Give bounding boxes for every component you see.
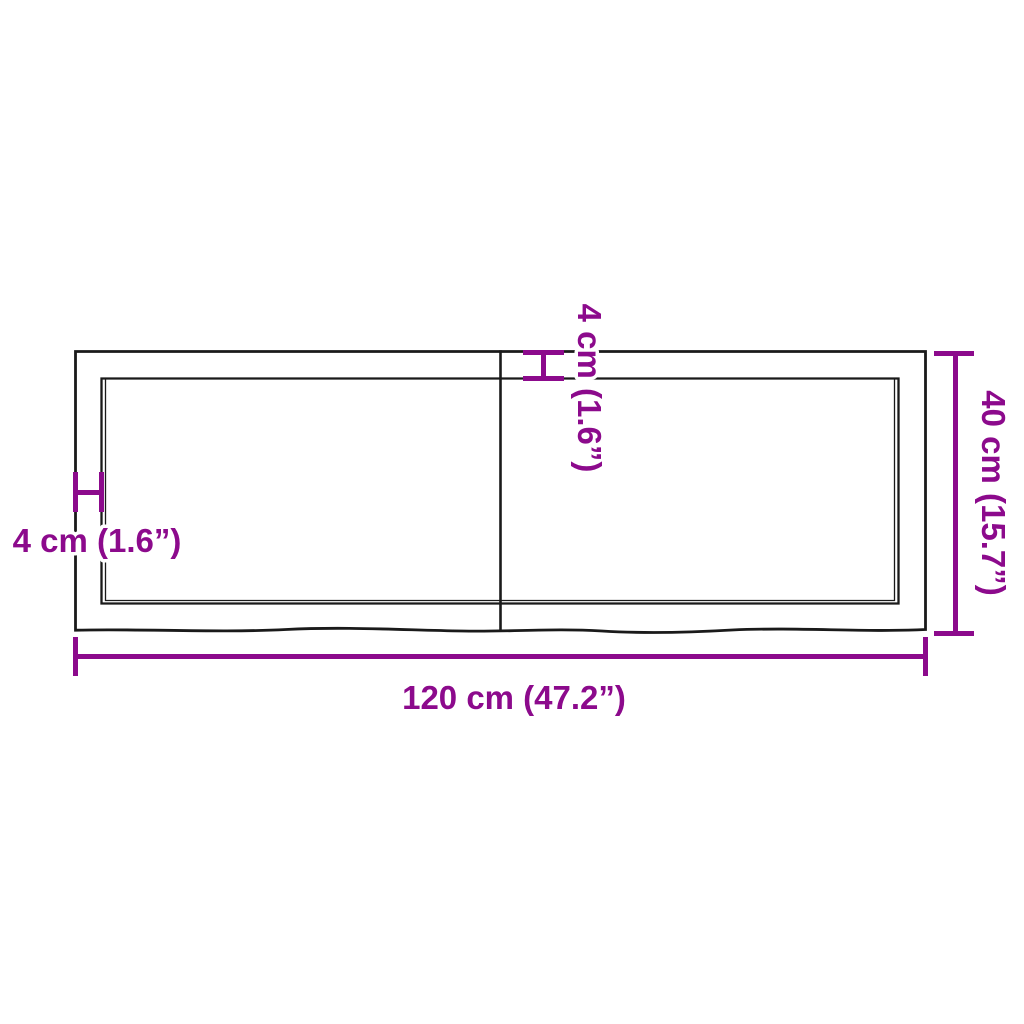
board-outlines xyxy=(76,352,926,633)
dimension-diagram: 120 cm (47.2”) 40 cm (15.7”) 4 cm (1.6”)… xyxy=(0,0,1024,1024)
height-label: 40 cm (15.7”) xyxy=(975,390,1012,595)
width-label: 120 cm (47.2”) xyxy=(402,679,626,716)
edge-left-label: 4 cm (1.6”) xyxy=(13,522,182,559)
edge-top-label: 4 cm (1.6”) xyxy=(571,304,608,473)
